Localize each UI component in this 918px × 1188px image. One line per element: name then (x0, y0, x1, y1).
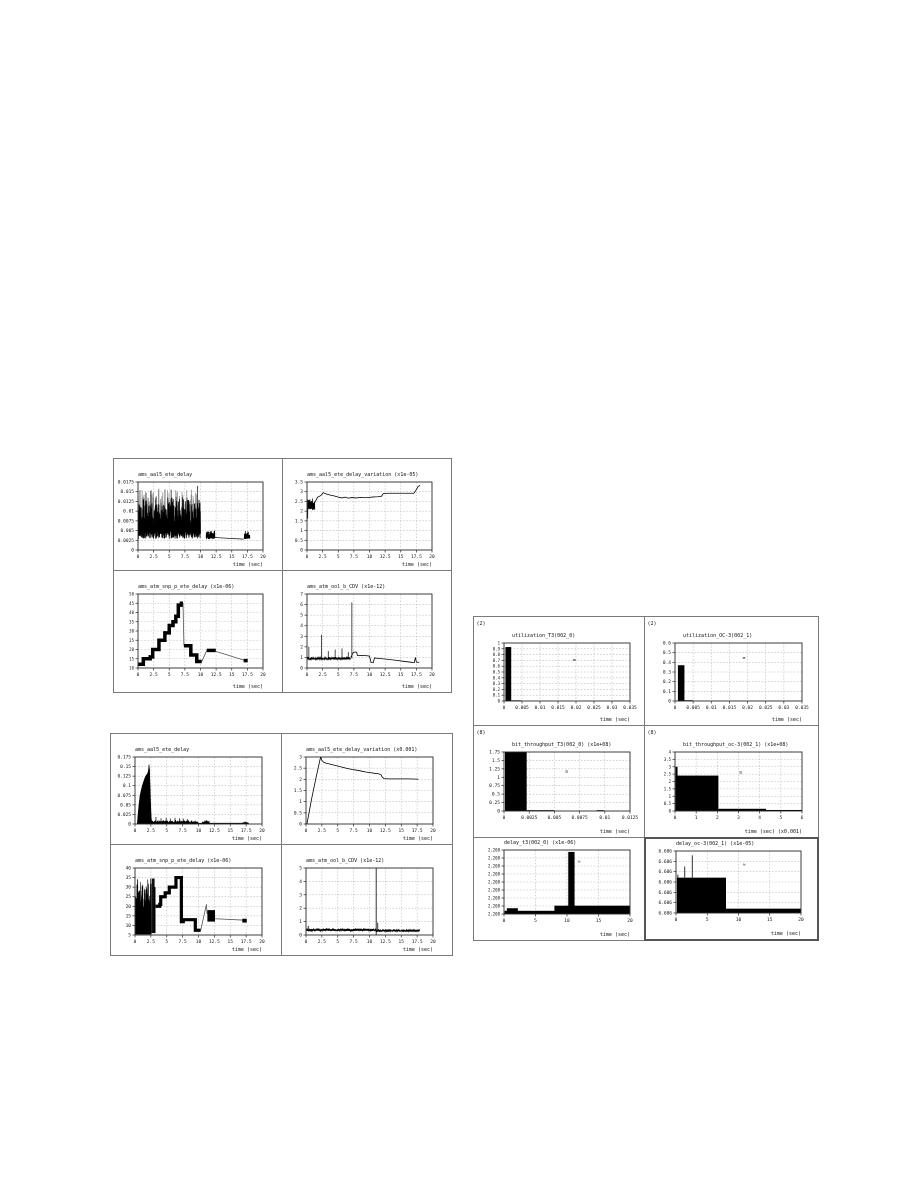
svg-text:5: 5 (706, 917, 709, 923)
svg-text:3: 3 (737, 815, 740, 821)
svg-text:2.5: 2.5 (150, 554, 158, 560)
svg-text:0.005: 0.005 (120, 528, 134, 534)
chart-data (138, 486, 250, 539)
svg-text:20: 20 (259, 828, 265, 834)
grid (306, 757, 433, 824)
chart-title: ams_atm_snp_p_ete_delay (x1e-06) (135, 858, 231, 864)
svg-text:0.005: 0.005 (548, 815, 562, 821)
axis-labels: 02.557.51012.51517.520543210ams_atm_ool_… (299, 858, 436, 953)
svg-text:20: 20 (129, 647, 134, 652)
svg-text:40: 40 (129, 610, 134, 615)
svg-text:2.208: 2.208 (488, 856, 501, 861)
svg-text:0.125: 0.125 (117, 774, 131, 780)
svg-text:7.5: 7.5 (350, 554, 358, 560)
svg-text:0.0025: 0.0025 (118, 538, 135, 544)
plot-svg: 051015206.6066.6066.6066.6066.6066.6066.… (646, 839, 817, 939)
plot-svg: 02.557.51012.51517.520504540353025201510… (114, 571, 282, 692)
svg-text:6.606: 6.606 (658, 911, 672, 917)
svg-text:0: 0 (674, 705, 677, 711)
chart-utilization-t3: 00.0050.010.0150.020.0250.030.03510.90.8… (473, 616, 645, 726)
svg-text:0.5: 0.5 (663, 650, 671, 656)
svg-text:1.5: 1.5 (492, 758, 500, 764)
svg-text:6.606: 6.606 (658, 859, 672, 865)
svg-text:1.25: 1.25 (489, 766, 500, 772)
svg-text:0.0075: 0.0075 (571, 815, 588, 821)
x-axis-label: time (sec) (402, 684, 432, 690)
svg-text:0: 0 (300, 548, 303, 554)
plot-svg: 00.00250.0050.00750.010.01251.751.51.251… (474, 726, 644, 837)
svg-text:10: 10 (196, 828, 202, 834)
svg-text:0: 0 (498, 699, 501, 704)
svg-text:7.5: 7.5 (181, 672, 189, 678)
chart-data (505, 647, 521, 701)
svg-text:0.4: 0.4 (663, 660, 671, 666)
svg-text:1.5: 1.5 (664, 786, 672, 791)
svg-text:0.035: 0.035 (623, 705, 637, 711)
svg-text:0.025: 0.025 (587, 705, 601, 711)
chart-title: ams_atm_snp_p_ete_delay (x1e-06) (138, 584, 234, 590)
chart-title: delay_t3(002_0) (x1e-06) (504, 840, 576, 846)
svg-text:0.01: 0.01 (535, 705, 546, 711)
svg-text:0.5: 0.5 (664, 801, 672, 806)
svg-text:0.5: 0.5 (493, 670, 501, 675)
svg-text:17.5: 17.5 (241, 828, 252, 834)
svg-text:5: 5 (128, 933, 131, 939)
chart-ams-aal5-ete-delay-2: 02.557.51012.51517.5200.1750.150.1250.10… (111, 734, 282, 845)
svg-text:25: 25 (126, 894, 132, 900)
svg-text:0.075: 0.075 (117, 793, 131, 799)
plot-svg: 051015202.2082.2082.2082.2082.2082.2082.… (474, 838, 644, 940)
svg-text:2.5: 2.5 (318, 828, 326, 834)
chart-data (308, 485, 420, 518)
svg-text:20: 20 (430, 828, 436, 834)
x-axis-label: time (sec) (771, 931, 801, 937)
svg-text:0.3: 0.3 (663, 670, 671, 676)
svg-text:7.5: 7.5 (350, 672, 358, 678)
svg-text:30: 30 (126, 885, 132, 891)
svg-text:17.5: 17.5 (242, 672, 253, 678)
svg-text:20: 20 (798, 917, 804, 923)
chart-data (306, 868, 419, 935)
svg-text:5: 5 (779, 815, 782, 821)
x-axis-label: time (sec) (233, 562, 263, 568)
svg-text:2.5: 2.5 (147, 828, 155, 834)
chart-delay-t3: 051015202.2082.2082.2082.2082.2082.2082.… (473, 837, 645, 941)
svg-text:0.015: 0.015 (551, 705, 565, 711)
chart-corner-label: (8) (648, 730, 657, 736)
svg-text:40: 40 (126, 866, 132, 872)
svg-text:2.208: 2.208 (488, 864, 501, 869)
plot-svg: 012345643.532.521.510.50bit_throughput_o… (645, 726, 818, 837)
svg-text:6: 6 (801, 815, 804, 821)
svg-text:5: 5 (534, 918, 537, 924)
svg-text:35: 35 (126, 875, 132, 881)
svg-text:15: 15 (228, 828, 234, 834)
svg-text:0: 0 (305, 828, 308, 834)
svg-text:10: 10 (198, 672, 204, 678)
svg-text:2.208: 2.208 (488, 912, 501, 917)
svg-text:2: 2 (716, 815, 719, 821)
x-axis-label: time (sec) (402, 562, 432, 568)
svg-text:0.9: 0.9 (493, 646, 501, 651)
svg-text:0.2: 0.2 (493, 687, 501, 692)
svg-text:2: 2 (299, 906, 302, 912)
svg-text:0.035: 0.035 (795, 705, 809, 711)
legend-mark: ≡ (739, 770, 742, 776)
svg-text:6.606: 6.606 (658, 890, 672, 896)
chart-group-aal5-atm-top: 02.557.51012.51517.5200.01750.0150.01250… (113, 458, 452, 693)
svg-text:15: 15 (129, 656, 134, 661)
svg-text:0: 0 (137, 672, 140, 678)
svg-text:15: 15 (596, 918, 602, 924)
svg-text:0: 0 (668, 699, 671, 705)
svg-text:2.208: 2.208 (488, 880, 501, 885)
svg-text:15: 15 (228, 939, 234, 945)
svg-text:15: 15 (229, 672, 235, 678)
svg-text:6: 6 (300, 602, 303, 608)
plot-svg: 02.557.51012.51517.5200.1750.150.1250.10… (111, 734, 281, 844)
svg-text:20: 20 (260, 672, 266, 678)
grid (135, 757, 262, 824)
svg-text:0.0125: 0.0125 (622, 815, 639, 821)
axis-labels: 051015202.2082.2082.2082.2082.2082.2082.… (488, 840, 633, 938)
svg-text:7.5: 7.5 (179, 828, 187, 834)
svg-text:0.4: 0.4 (493, 675, 501, 680)
svg-text:0.03: 0.03 (778, 705, 789, 711)
svg-text:10: 10 (196, 939, 202, 945)
grid (307, 482, 432, 550)
chart-ams-atm-ete-delay-2: 02.557.51012.51517.520403530252015105ams… (111, 845, 282, 955)
svg-text:0.015: 0.015 (723, 705, 737, 711)
legend-mark: ≡ (565, 769, 568, 775)
svg-text:2.208: 2.208 (488, 896, 501, 901)
svg-text:0.01: 0.01 (706, 705, 717, 711)
x-axis-label: time (sec) (x0.001) (745, 829, 802, 835)
svg-text:2.208: 2.208 (488, 904, 501, 909)
svg-text:5: 5 (336, 828, 339, 834)
svg-text:15: 15 (399, 939, 405, 945)
svg-text:0.8: 0.8 (493, 652, 501, 657)
svg-text:12.5: 12.5 (380, 672, 391, 678)
axis-labels: 02.557.51012.51517.52032.521.510.50ams_a… (294, 747, 436, 842)
svg-text:10: 10 (198, 554, 204, 560)
legend-mark: ≡ (573, 658, 576, 664)
svg-text:7.5: 7.5 (179, 939, 187, 945)
svg-text:45: 45 (129, 601, 134, 606)
chart-bit-throughput-oc3: 012345643.532.521.510.50bit_throughput_o… (644, 725, 819, 838)
svg-text:12.5: 12.5 (209, 828, 220, 834)
chart-title: ams_aal5_ete_delay (135, 747, 189, 753)
svg-text:20: 20 (259, 939, 265, 945)
svg-text:17.5: 17.5 (412, 939, 423, 945)
chart-group-utilization-throughput-delay: 00.0050.010.0150.020.0250.030.03510.90.8… (473, 616, 819, 941)
svg-text:2.5: 2.5 (150, 672, 158, 678)
svg-text:10: 10 (736, 917, 742, 923)
svg-text:15: 15 (399, 828, 405, 834)
svg-text:2.5: 2.5 (319, 672, 327, 678)
chart-title: ams_aal5_ete_delay (138, 472, 192, 478)
svg-text:0.1: 0.1 (123, 783, 131, 789)
svg-text:1.5: 1.5 (294, 788, 302, 794)
svg-text:10: 10 (367, 939, 373, 945)
chart-title: ams_atm_ool_b_CDV (x1e-12) (306, 858, 384, 864)
chart-delay-oc3: 051015206.6066.6066.6066.6066.6066.6066.… (644, 837, 819, 941)
svg-text:10: 10 (367, 828, 373, 834)
svg-text:0: 0 (137, 554, 140, 560)
svg-text:2.5: 2.5 (294, 766, 302, 772)
svg-text:0: 0 (497, 809, 500, 815)
svg-text:17.5: 17.5 (412, 828, 423, 834)
chart-corner-label: (2) (477, 621, 486, 627)
svg-text:17.5: 17.5 (241, 939, 252, 945)
plot-svg: 02.557.51012.51517.52076543210ams_atm_oo… (283, 571, 451, 692)
x-axis-label: time (sec) (600, 932, 630, 938)
svg-text:0: 0 (299, 822, 302, 828)
svg-text:0: 0 (306, 554, 309, 560)
svg-text:6.606: 6.606 (658, 869, 672, 875)
svg-text:0.175: 0.175 (117, 755, 131, 761)
svg-text:0.3: 0.3 (493, 681, 501, 686)
axis-labels: 02.557.51012.51517.520504540353025201510… (129, 584, 266, 690)
svg-text:0.005: 0.005 (686, 705, 700, 711)
svg-text:7: 7 (300, 592, 303, 598)
svg-text:0.7: 0.7 (493, 658, 501, 663)
svg-text:0: 0 (503, 918, 506, 924)
legend-mark: ≡ (742, 655, 745, 661)
grid (675, 643, 802, 701)
svg-text:0.05: 0.05 (120, 802, 131, 808)
svg-text:5: 5 (300, 613, 303, 619)
svg-text:0.5: 0.5 (295, 538, 303, 544)
svg-text:12.5: 12.5 (209, 939, 220, 945)
svg-text:10: 10 (564, 918, 570, 924)
chart-ams-atm-ete-delay-1: 02.557.51012.51517.520504540353025201510… (114, 571, 283, 692)
plot-svg: 02.557.51012.51517.520403530252015105ams… (111, 845, 281, 955)
svg-text:7.5: 7.5 (181, 554, 189, 560)
svg-text:12.5: 12.5 (380, 939, 391, 945)
svg-text:2.5: 2.5 (664, 772, 672, 777)
svg-text:2.5: 2.5 (147, 939, 155, 945)
x-axis-label: time (sec) (232, 836, 262, 842)
svg-text:0: 0 (128, 822, 131, 828)
svg-text:0.0025: 0.0025 (521, 815, 538, 821)
svg-text:3.5: 3.5 (295, 480, 303, 486)
svg-text:0: 0 (305, 939, 308, 945)
svg-text:20: 20 (429, 554, 435, 560)
svg-text:1: 1 (300, 528, 303, 534)
svg-text:50: 50 (129, 592, 134, 597)
svg-text:7.5: 7.5 (350, 939, 358, 945)
svg-text:0.03: 0.03 (607, 705, 618, 711)
svg-text:0: 0 (131, 548, 134, 554)
svg-text:10: 10 (367, 672, 373, 678)
svg-text:10: 10 (129, 666, 134, 671)
svg-text:0: 0 (134, 828, 137, 834)
grid (504, 643, 630, 701)
svg-text:10: 10 (126, 923, 132, 929)
svg-text:0.75: 0.75 (489, 783, 500, 789)
svg-text:6.606: 6.606 (658, 880, 672, 886)
svg-text:0.02: 0.02 (571, 705, 582, 711)
svg-text:3: 3 (300, 489, 303, 495)
svg-text:0: 0 (299, 933, 302, 939)
svg-text:0.0125: 0.0125 (118, 499, 135, 505)
svg-text:4: 4 (669, 750, 672, 755)
svg-text:5: 5 (168, 672, 171, 678)
svg-text:0.0075: 0.0075 (118, 518, 135, 524)
svg-text:0.5: 0.5 (492, 792, 500, 798)
chart-title: ams_atm_ool_b_CDV (x1e-12) (307, 584, 385, 590)
svg-text:1: 1 (498, 641, 501, 646)
svg-text:20: 20 (260, 554, 266, 560)
svg-text:0.01: 0.01 (599, 815, 610, 821)
x-axis-label: time (sec) (403, 836, 433, 842)
svg-text:35: 35 (129, 619, 134, 624)
svg-text:3: 3 (299, 755, 302, 761)
chart-title: ams_aal5_ete_delay_variation (x1e-05) (307, 472, 418, 478)
chart-title: ams_aal5_ete_delay_variation (x0.001) (306, 747, 417, 753)
x-axis-label: time (sec) (600, 829, 630, 835)
svg-text:0: 0 (503, 815, 506, 821)
svg-text:5: 5 (165, 828, 168, 834)
x-axis-label: time (sec) (233, 684, 263, 690)
chart-ams-aal5-ete-delay-variation-2: 02.557.51012.51517.52032.521.510.50ams_a… (282, 734, 452, 845)
svg-text:0.25: 0.25 (489, 800, 500, 806)
svg-text:5: 5 (165, 939, 168, 945)
svg-text:1: 1 (299, 799, 302, 805)
chart-data (307, 757, 418, 824)
svg-text:20: 20 (430, 939, 436, 945)
svg-text:15: 15 (767, 917, 773, 923)
svg-text:2: 2 (669, 779, 672, 784)
chart-group-aal5-atm-bottom: 02.557.51012.51517.5200.1750.150.1250.10… (110, 733, 453, 956)
svg-text:6.606: 6.606 (658, 900, 672, 906)
svg-text:5: 5 (337, 554, 340, 560)
chart-data (677, 855, 801, 913)
legend-mark: ≈ (743, 862, 746, 868)
chart-title: utilization_T3(002_0) (512, 633, 575, 639)
svg-text:0: 0 (675, 917, 678, 923)
chart-title: utilization_OC-3(002_1) (683, 633, 752, 639)
chart-corner-label: (2) (648, 621, 657, 627)
svg-text:2: 2 (299, 777, 302, 783)
svg-text:20: 20 (627, 918, 633, 924)
x-axis-label: time (sec) (772, 717, 802, 723)
svg-text:0: 0 (503, 705, 506, 711)
svg-text:30: 30 (129, 629, 134, 634)
x-axis-label: time (sec) (403, 947, 433, 953)
plot-svg: 02.557.51012.51517.5200.01750.0150.01250… (114, 459, 282, 570)
svg-text:0.01: 0.01 (123, 509, 134, 515)
chart-ams-aal5-ete-delay-variation-1: 02.557.51012.51517.5203.532.521.510.50am… (283, 459, 451, 571)
svg-text:15: 15 (398, 554, 404, 560)
chart-corner-label: (8) (477, 730, 486, 736)
plot-svg: 00.0050.010.0150.020.0250.030.0350.60.50… (645, 617, 818, 725)
svg-text:12.5: 12.5 (380, 554, 391, 560)
svg-text:3: 3 (300, 634, 303, 640)
svg-text:7.5: 7.5 (350, 828, 358, 834)
svg-text:20: 20 (429, 672, 435, 678)
svg-text:0.02: 0.02 (742, 705, 753, 711)
svg-text:0.6: 0.6 (663, 641, 671, 647)
svg-text:0.005: 0.005 (515, 705, 529, 711)
svg-text:2.5: 2.5 (319, 554, 327, 560)
svg-text:2.208: 2.208 (488, 848, 501, 853)
chart-data (678, 665, 693, 701)
svg-text:0: 0 (306, 672, 309, 678)
svg-text:0: 0 (300, 666, 303, 672)
legend-mark: ≈ (577, 859, 580, 865)
chart-data (137, 765, 248, 824)
svg-text:0: 0 (134, 939, 137, 945)
x-axis-label: time (sec) (600, 717, 630, 723)
svg-text:0.15: 0.15 (120, 764, 131, 770)
svg-text:2: 2 (300, 509, 303, 515)
svg-text:1: 1 (299, 919, 302, 925)
svg-text:0.5: 0.5 (294, 810, 302, 816)
svg-text:0.015: 0.015 (120, 489, 134, 495)
svg-text:0.025: 0.025 (117, 812, 131, 818)
chart-ams-atm-cdv-1: 02.557.51012.51517.52076543210ams_atm_oo… (283, 571, 451, 692)
axis-labels: 02.557.51012.51517.5200.1750.150.1250.10… (117, 747, 265, 842)
svg-text:5: 5 (168, 554, 171, 560)
svg-text:15: 15 (398, 672, 404, 678)
svg-text:0: 0 (674, 815, 677, 821)
chart-ams-atm-cdv-2: 02.557.51012.51517.520543210ams_atm_ool_… (282, 845, 452, 955)
svg-text:12.5: 12.5 (211, 554, 222, 560)
svg-text:0.0175: 0.0175 (118, 480, 135, 486)
svg-text:1: 1 (695, 815, 698, 821)
chart-data (307, 602, 419, 662)
svg-text:5: 5 (337, 672, 340, 678)
svg-text:0.1: 0.1 (493, 693, 501, 698)
plot-svg: 02.557.51012.51517.5203.532.521.510.50am… (283, 459, 451, 570)
svg-text:2: 2 (300, 644, 303, 650)
svg-text:1: 1 (497, 775, 500, 781)
svg-text:3: 3 (299, 892, 302, 898)
svg-text:0.1: 0.1 (663, 689, 671, 695)
svg-text:1.75: 1.75 (489, 750, 500, 756)
svg-text:4: 4 (300, 623, 303, 629)
svg-text:17.5: 17.5 (411, 554, 422, 560)
svg-text:1.5: 1.5 (295, 518, 303, 524)
chart-data (136, 878, 247, 934)
svg-text:3.5: 3.5 (664, 757, 672, 762)
svg-text:0.2: 0.2 (663, 679, 671, 685)
svg-text:3: 3 (669, 764, 672, 769)
svg-text:2.5: 2.5 (295, 499, 303, 505)
svg-text:4: 4 (299, 879, 302, 885)
svg-text:6.606: 6.606 (658, 849, 672, 855)
axis-labels: 02.557.51012.51517.5203.532.521.510.50am… (295, 472, 435, 568)
svg-text:2.5: 2.5 (318, 939, 326, 945)
svg-text:15: 15 (126, 913, 132, 919)
svg-text:2.208: 2.208 (488, 888, 501, 893)
svg-text:0: 0 (669, 809, 672, 814)
svg-text:2.208: 2.208 (488, 872, 501, 877)
svg-text:20: 20 (126, 904, 132, 910)
svg-text:5: 5 (336, 939, 339, 945)
chart-title: bit_throughput_oc-3(002_1) (x1e+08) (683, 742, 788, 748)
svg-text:1: 1 (300, 655, 303, 661)
svg-text:17.5: 17.5 (411, 672, 422, 678)
x-axis-label: time (sec) (232, 947, 262, 953)
chart-title: delay_oc-3(002_1) (x1e-05) (676, 841, 754, 847)
axis-labels: 00.00250.0050.00750.010.01251.751.51.251… (477, 730, 639, 835)
axis-labels: 02.557.51012.51517.52076543210ams_atm_oo… (300, 584, 435, 690)
svg-text:15: 15 (229, 554, 235, 560)
svg-text:0.6: 0.6 (493, 664, 501, 669)
